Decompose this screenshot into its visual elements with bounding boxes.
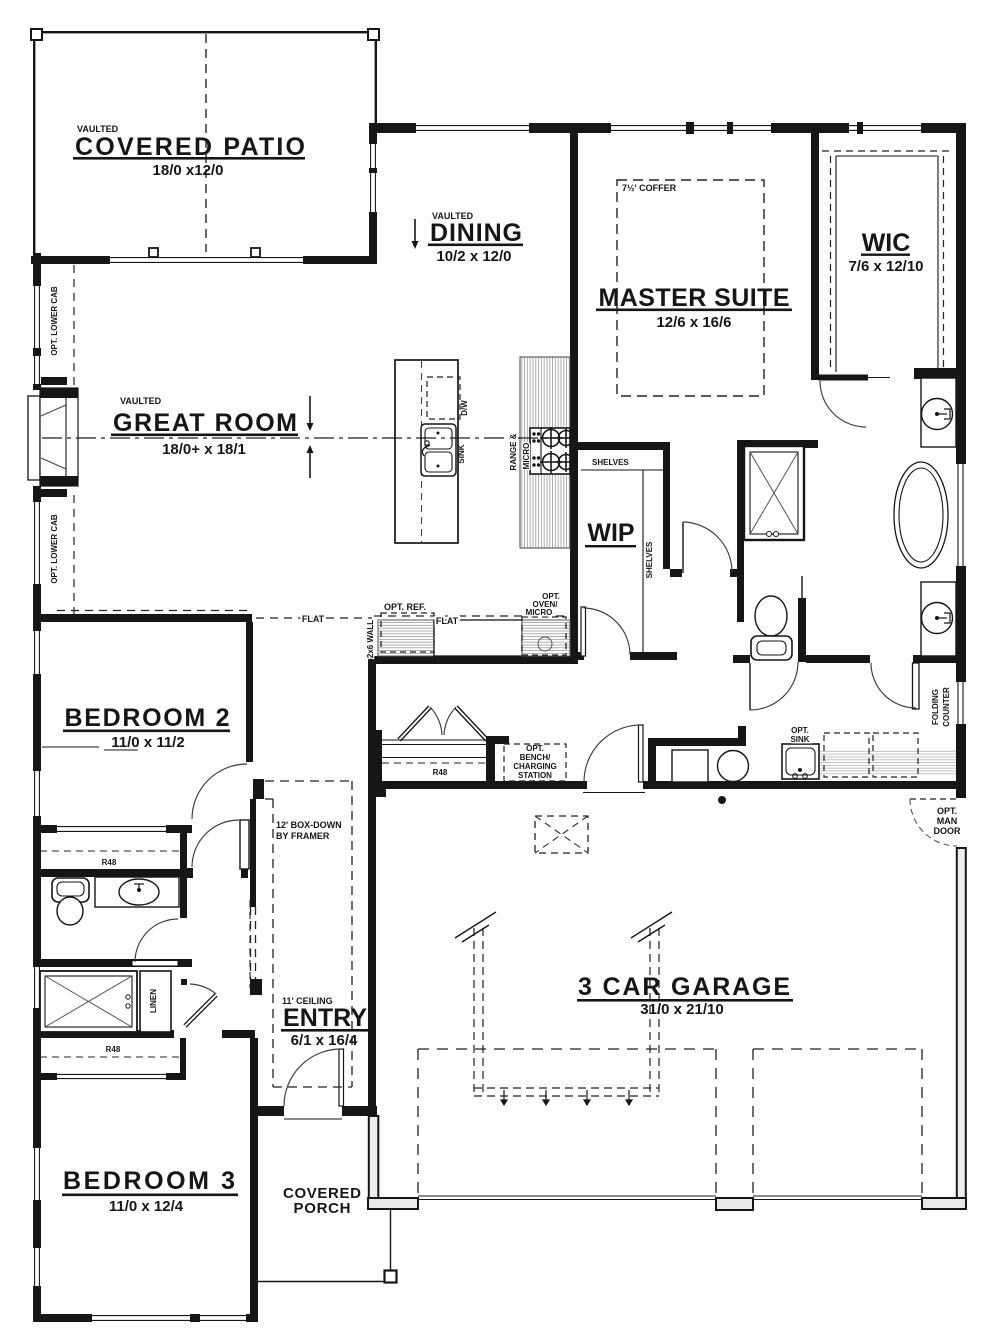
svg-text:COUNTER: COUNTER <box>942 687 951 727</box>
svg-text:BENCH/: BENCH/ <box>520 753 551 762</box>
svg-text:BY FRAMER: BY FRAMER <box>276 831 330 841</box>
svg-text:11/0 x 12/4: 11/0 x 12/4 <box>109 1198 184 1215</box>
svg-text:DOOR: DOOR <box>934 826 962 836</box>
svg-text:OPT.: OPT. <box>791 726 809 735</box>
svg-text:RANGE &: RANGE & <box>509 433 518 470</box>
svg-text:ENTRY: ENTRY <box>283 1004 367 1032</box>
svg-text:7½' COFFER: 7½' COFFER <box>622 183 677 193</box>
svg-text:SINK: SINK <box>790 735 809 744</box>
svg-text:BEDROOM 2: BEDROOM 2 <box>65 704 230 732</box>
svg-text:2x6 WALL: 2x6 WALL <box>366 620 375 658</box>
svg-text:OPT.: OPT. <box>526 744 544 753</box>
svg-text:FOLDING: FOLDING <box>931 689 940 725</box>
svg-text:3 CAR GARAGE: 3 CAR GARAGE <box>578 973 790 1001</box>
svg-text:FLAT: FLAT <box>302 614 325 624</box>
svg-text:FLAT: FLAT <box>436 616 459 626</box>
svg-text:SHELVES: SHELVES <box>592 458 629 467</box>
svg-text:WIC: WIC <box>862 229 911 257</box>
svg-text:18/0 x12/0: 18/0 x12/0 <box>153 162 224 179</box>
svg-text:DINING: DINING <box>430 219 522 247</box>
svg-text:PORCH: PORCH <box>294 1200 351 1217</box>
svg-text:R48: R48 <box>102 858 117 867</box>
svg-text:18/0+ x 18/1: 18/0+ x 18/1 <box>162 441 246 458</box>
svg-text:MASTER SUITE: MASTER SUITE <box>599 284 790 312</box>
svg-text:COVERED PATIO: COVERED PATIO <box>75 133 305 161</box>
svg-text:OPT. REF.: OPT. REF. <box>384 602 426 612</box>
svg-text:7/6 x 12/10: 7/6 x 12/10 <box>848 258 923 275</box>
svg-text:LINEN: LINEN <box>149 989 158 1013</box>
svg-text:10/2 x 12/0: 10/2 x 12/0 <box>436 248 511 265</box>
svg-text:MAN: MAN <box>937 816 958 826</box>
svg-text:CHARGING: CHARGING <box>513 762 557 771</box>
svg-text:D/W: D/W <box>460 400 469 416</box>
svg-text:VAULTED: VAULTED <box>120 396 162 406</box>
svg-text:STATION: STATION <box>518 771 552 780</box>
svg-text:12' BOX-DOWN: 12' BOX-DOWN <box>276 820 342 830</box>
svg-text:6/1 x 16/4: 6/1 x 16/4 <box>291 1032 358 1049</box>
svg-text:31/0 x 21/10: 31/0 x 21/10 <box>640 1001 723 1018</box>
svg-text:R48: R48 <box>106 1045 121 1054</box>
svg-text:R48: R48 <box>433 768 448 777</box>
svg-text:WIP: WIP <box>587 519 634 547</box>
svg-text:12/6 x 16/6: 12/6 x 16/6 <box>656 314 731 331</box>
svg-text:OPT. LOWER CAB: OPT. LOWER CAB <box>50 514 59 584</box>
svg-text:SINK: SINK <box>457 444 466 463</box>
svg-text:11/0 x 11/2: 11/0 x 11/2 <box>111 734 184 751</box>
svg-text:OPT.: OPT. <box>937 806 957 816</box>
svg-text:OPT. LOWER CAB: OPT. LOWER CAB <box>50 286 59 356</box>
svg-text:MICRO: MICRO <box>522 443 531 470</box>
svg-text:MICRO: MICRO <box>526 608 553 617</box>
svg-text:SHELVES: SHELVES <box>645 541 654 578</box>
